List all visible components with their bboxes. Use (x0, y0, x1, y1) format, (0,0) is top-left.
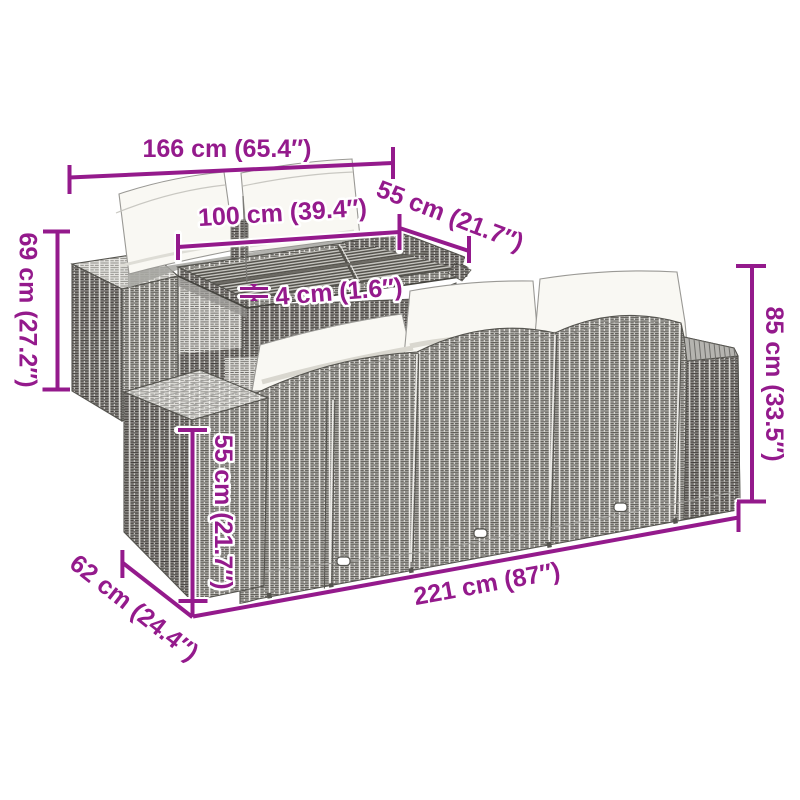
svg-text:85 cm (33.5″): 85 cm (33.5″) (760, 306, 788, 461)
svg-text:69 cm (27.2″): 69 cm (27.2″) (14, 232, 42, 387)
svg-text:55 cm (21.7″): 55 cm (21.7″) (209, 434, 237, 589)
svg-text:166 cm (65.4″): 166 cm (65.4″) (142, 135, 311, 163)
